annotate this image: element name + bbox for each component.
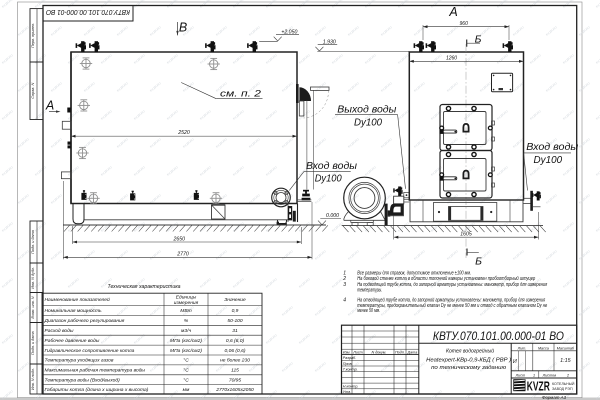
- svg-text:Вход воды: Вход воды: [526, 142, 579, 153]
- svg-text:Подп. и дата: Подп. и дата: [31, 230, 35, 254]
- svg-text:Лист: Лист: [515, 373, 526, 377]
- svg-text:1.930: 1.930: [323, 39, 336, 45]
- svg-text:1260: 1260: [446, 55, 457, 61]
- svg-text:Максимальная рабочая температу: Максимальная рабочая температура воды: [45, 368, 146, 374]
- svg-text:температуры, предохранительный: температуры, предохранительный клапан Dy…: [357, 302, 547, 309]
- svg-text:Т.контр.: Т.контр.: [343, 368, 358, 372]
- svg-text:Единицы: Единицы: [176, 294, 197, 300]
- svg-text:Инв. N дубл.: Инв. N дубл.: [31, 267, 35, 289]
- svg-text:Масса: Масса: [538, 346, 549, 350]
- svg-text:Б: Б: [475, 33, 482, 45]
- svg-text:Выход воды: Выход воды: [337, 104, 397, 115]
- svg-text:см. п. 2: см. п. 2: [220, 89, 261, 99]
- svg-text:0.000: 0.000: [326, 213, 339, 219]
- svg-text:°С: °С: [183, 358, 189, 364]
- svg-text:°С: °С: [183, 368, 189, 374]
- svg-text:Dy100: Dy100: [354, 118, 382, 129]
- svg-text:Номинальная мощность: Номинальная мощность: [45, 308, 103, 314]
- svg-text:°С: °С: [183, 377, 189, 383]
- svg-text:Температура уходящих газов: Температура уходящих газов: [45, 358, 114, 364]
- svg-text:Н.контр.: Н.контр.: [343, 385, 359, 389]
- svg-text:70/95: 70/95: [229, 377, 242, 383]
- svg-text:4: 4: [343, 298, 346, 304]
- svg-text:Лит.: Лит.: [517, 346, 527, 350]
- svg-text:Подп. и дата: Подп. и дата: [31, 331, 35, 355]
- svg-text:KVZR: KVZR: [527, 379, 550, 394]
- svg-text:Формат А3: Формат А3: [542, 395, 567, 400]
- svg-text:Гидравлическое сопротивление к: Гидравлическое сопротивление котла: [45, 348, 135, 354]
- svg-text:2770: 2770: [176, 252, 189, 258]
- svg-text:КОТЕЛЬНЫЙ: КОТЕЛЬНЫЙ: [552, 382, 575, 386]
- svg-text:И: И: [513, 359, 517, 365]
- svg-text:менее 50 мм.: менее 50 мм.: [357, 308, 380, 314]
- svg-text:N докум.: N докум.: [372, 351, 387, 355]
- svg-text:Перв. примен.: Перв. примен.: [31, 23, 35, 48]
- svg-text:Расход воды: Расход воды: [45, 328, 74, 334]
- svg-text:Вход воды: Вход воды: [306, 161, 358, 172]
- svg-text:Взам. инв. N: Взам. инв. N: [31, 296, 35, 318]
- svg-text:На подводящей трубе котла, до: На подводящей трубе котла, до запорной а…: [357, 281, 547, 288]
- svg-text:Диапазон рабочего регулировани: Диапазон рабочего регулирования: [44, 318, 125, 324]
- svg-text:+2.050: +2.050: [281, 29, 297, 35]
- svg-text:Значение: Значение: [224, 297, 246, 303]
- svg-text:0,6 (6,0): 0,6 (6,0): [226, 338, 245, 344]
- svg-text:0,06 (0,6): 0,06 (0,6): [225, 348, 246, 354]
- svg-text:КВТУ.070.101.00.000-01 ВО: КВТУ.070.101.00.000-01 ВО: [46, 8, 130, 17]
- svg-text:ЗАВОД РЭП: ЗАВОД РЭП: [552, 387, 573, 391]
- svg-text:0,9: 0,9: [232, 308, 239, 314]
- svg-text:%: %: [184, 318, 189, 324]
- svg-text:Инв. N подл.: Инв. N подл.: [31, 368, 35, 390]
- svg-text:Габариты котла (длина х ширина: Габариты котла (длина х ширина х высота): [45, 387, 149, 393]
- svg-text:Листов: Листов: [542, 373, 557, 377]
- svg-text:2520: 2520: [177, 130, 190, 136]
- svg-text:В: В: [179, 21, 187, 35]
- svg-text:2650: 2650: [173, 236, 186, 242]
- svg-text:1605: 1605: [460, 232, 472, 238]
- svg-text:Dy100: Dy100: [315, 174, 342, 185]
- svg-text:Б: Б: [475, 255, 482, 267]
- svg-text:Температура воды (Вход/выход): Температура воды (Вход/выход): [45, 377, 121, 383]
- svg-text:Dy100: Dy100: [534, 155, 563, 166]
- svg-text:Пров.: Пров.: [343, 362, 353, 366]
- svg-text:МПа (кгс/см2): МПа (кгс/см2): [170, 338, 202, 344]
- svg-text:КВТУ.070.101.00.000-01 ВО: КВТУ.070.101.00.000-01 ВО: [433, 329, 564, 343]
- svg-text:Масштаб: Масштаб: [557, 346, 575, 350]
- svg-text:Техническая характеристика: Техническая характеристика: [108, 284, 181, 290]
- svg-text:Справ. N: Справ. N: [31, 83, 35, 99]
- svg-text:Наименование показателей: Наименование показателей: [45, 296, 110, 303]
- svg-text:3: 3: [343, 282, 346, 288]
- svg-text:А: А: [448, 5, 457, 19]
- svg-text:мм: мм: [183, 388, 190, 393]
- svg-text:115: 115: [231, 368, 239, 374]
- svg-text:Изм.: Изм.: [343, 351, 351, 355]
- svg-text:2770х1605х2050: 2770х1605х2050: [215, 387, 254, 393]
- svg-text:31: 31: [232, 328, 238, 334]
- svg-text:не более 230: не более 230: [220, 358, 250, 364]
- svg-text:1:15: 1:15: [560, 358, 571, 364]
- svg-text:Утв.: Утв.: [343, 390, 351, 394]
- svg-text:Подп.: Подп.: [395, 351, 405, 355]
- svg-text:Разраб.: Разраб.: [343, 356, 356, 360]
- svg-text:температуры.: температуры.: [357, 287, 382, 293]
- svg-text:Heatexpert-КВр-0,9-КБД ( РВР ): Heatexpert-КВр-0,9-КБД ( РВР ): [426, 357, 511, 363]
- svg-text:50-100: 50-100: [227, 318, 243, 324]
- svg-text:МВт: МВт: [180, 308, 191, 314]
- svg-text:2: 2: [566, 373, 569, 377]
- svg-text:А: А: [45, 99, 54, 113]
- svg-text:Дата: Дата: [407, 351, 418, 355]
- svg-text:измерения: измерения: [174, 301, 199, 306]
- svg-text:Котел водогрейный: Котел водогрейный: [446, 348, 494, 355]
- svg-text:Рабочее давление воды: Рабочее давление воды: [45, 338, 100, 344]
- svg-text:МПа (кгс/см2): МПа (кгс/см2): [170, 348, 202, 354]
- svg-text:960: 960: [460, 21, 469, 27]
- svg-text:по техническому заданию: по техническому заданию: [431, 365, 506, 371]
- svg-text:Лист: Лист: [352, 351, 363, 355]
- svg-text:м3/ч: м3/ч: [181, 328, 191, 334]
- svg-text:1: 1: [533, 373, 535, 377]
